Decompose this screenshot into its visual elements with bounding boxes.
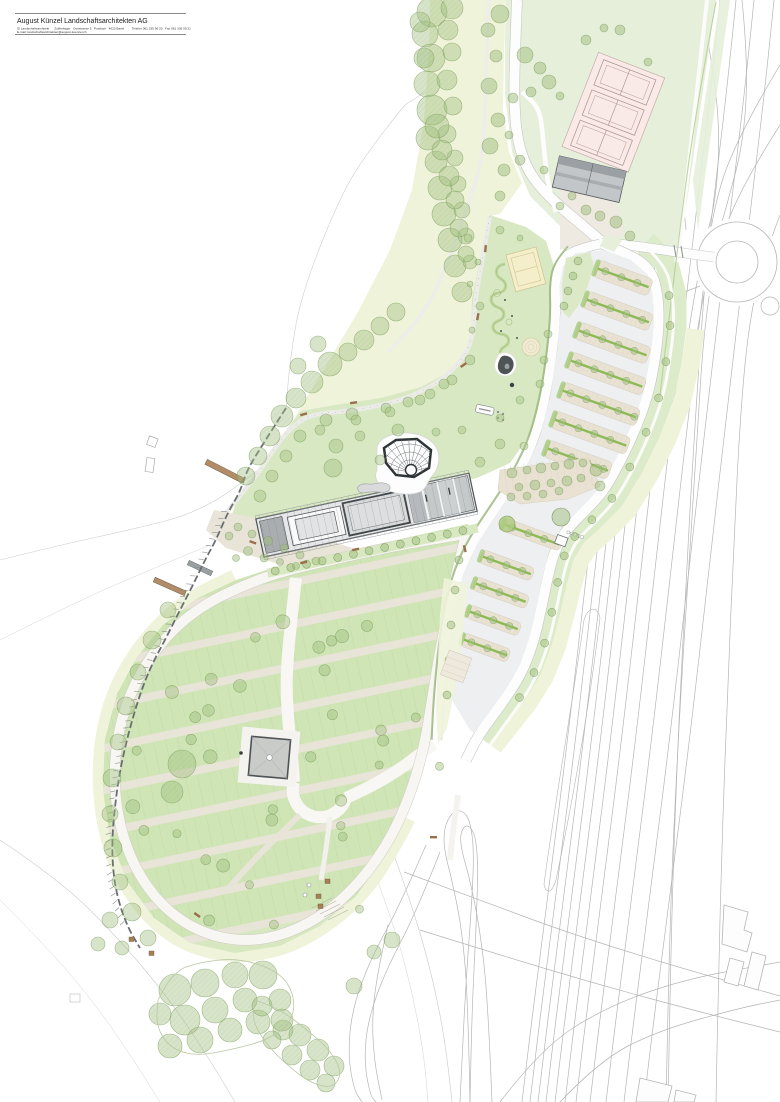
svg-text:August Künzel Landschaftsarchi: August Künzel Landschaftsarchitekten AG <box>17 18 148 25</box>
svg-text:E-mail: landschaftsarchitekten: E-mail: landschaftsarchitekten@august-ku… <box>17 30 87 34</box>
